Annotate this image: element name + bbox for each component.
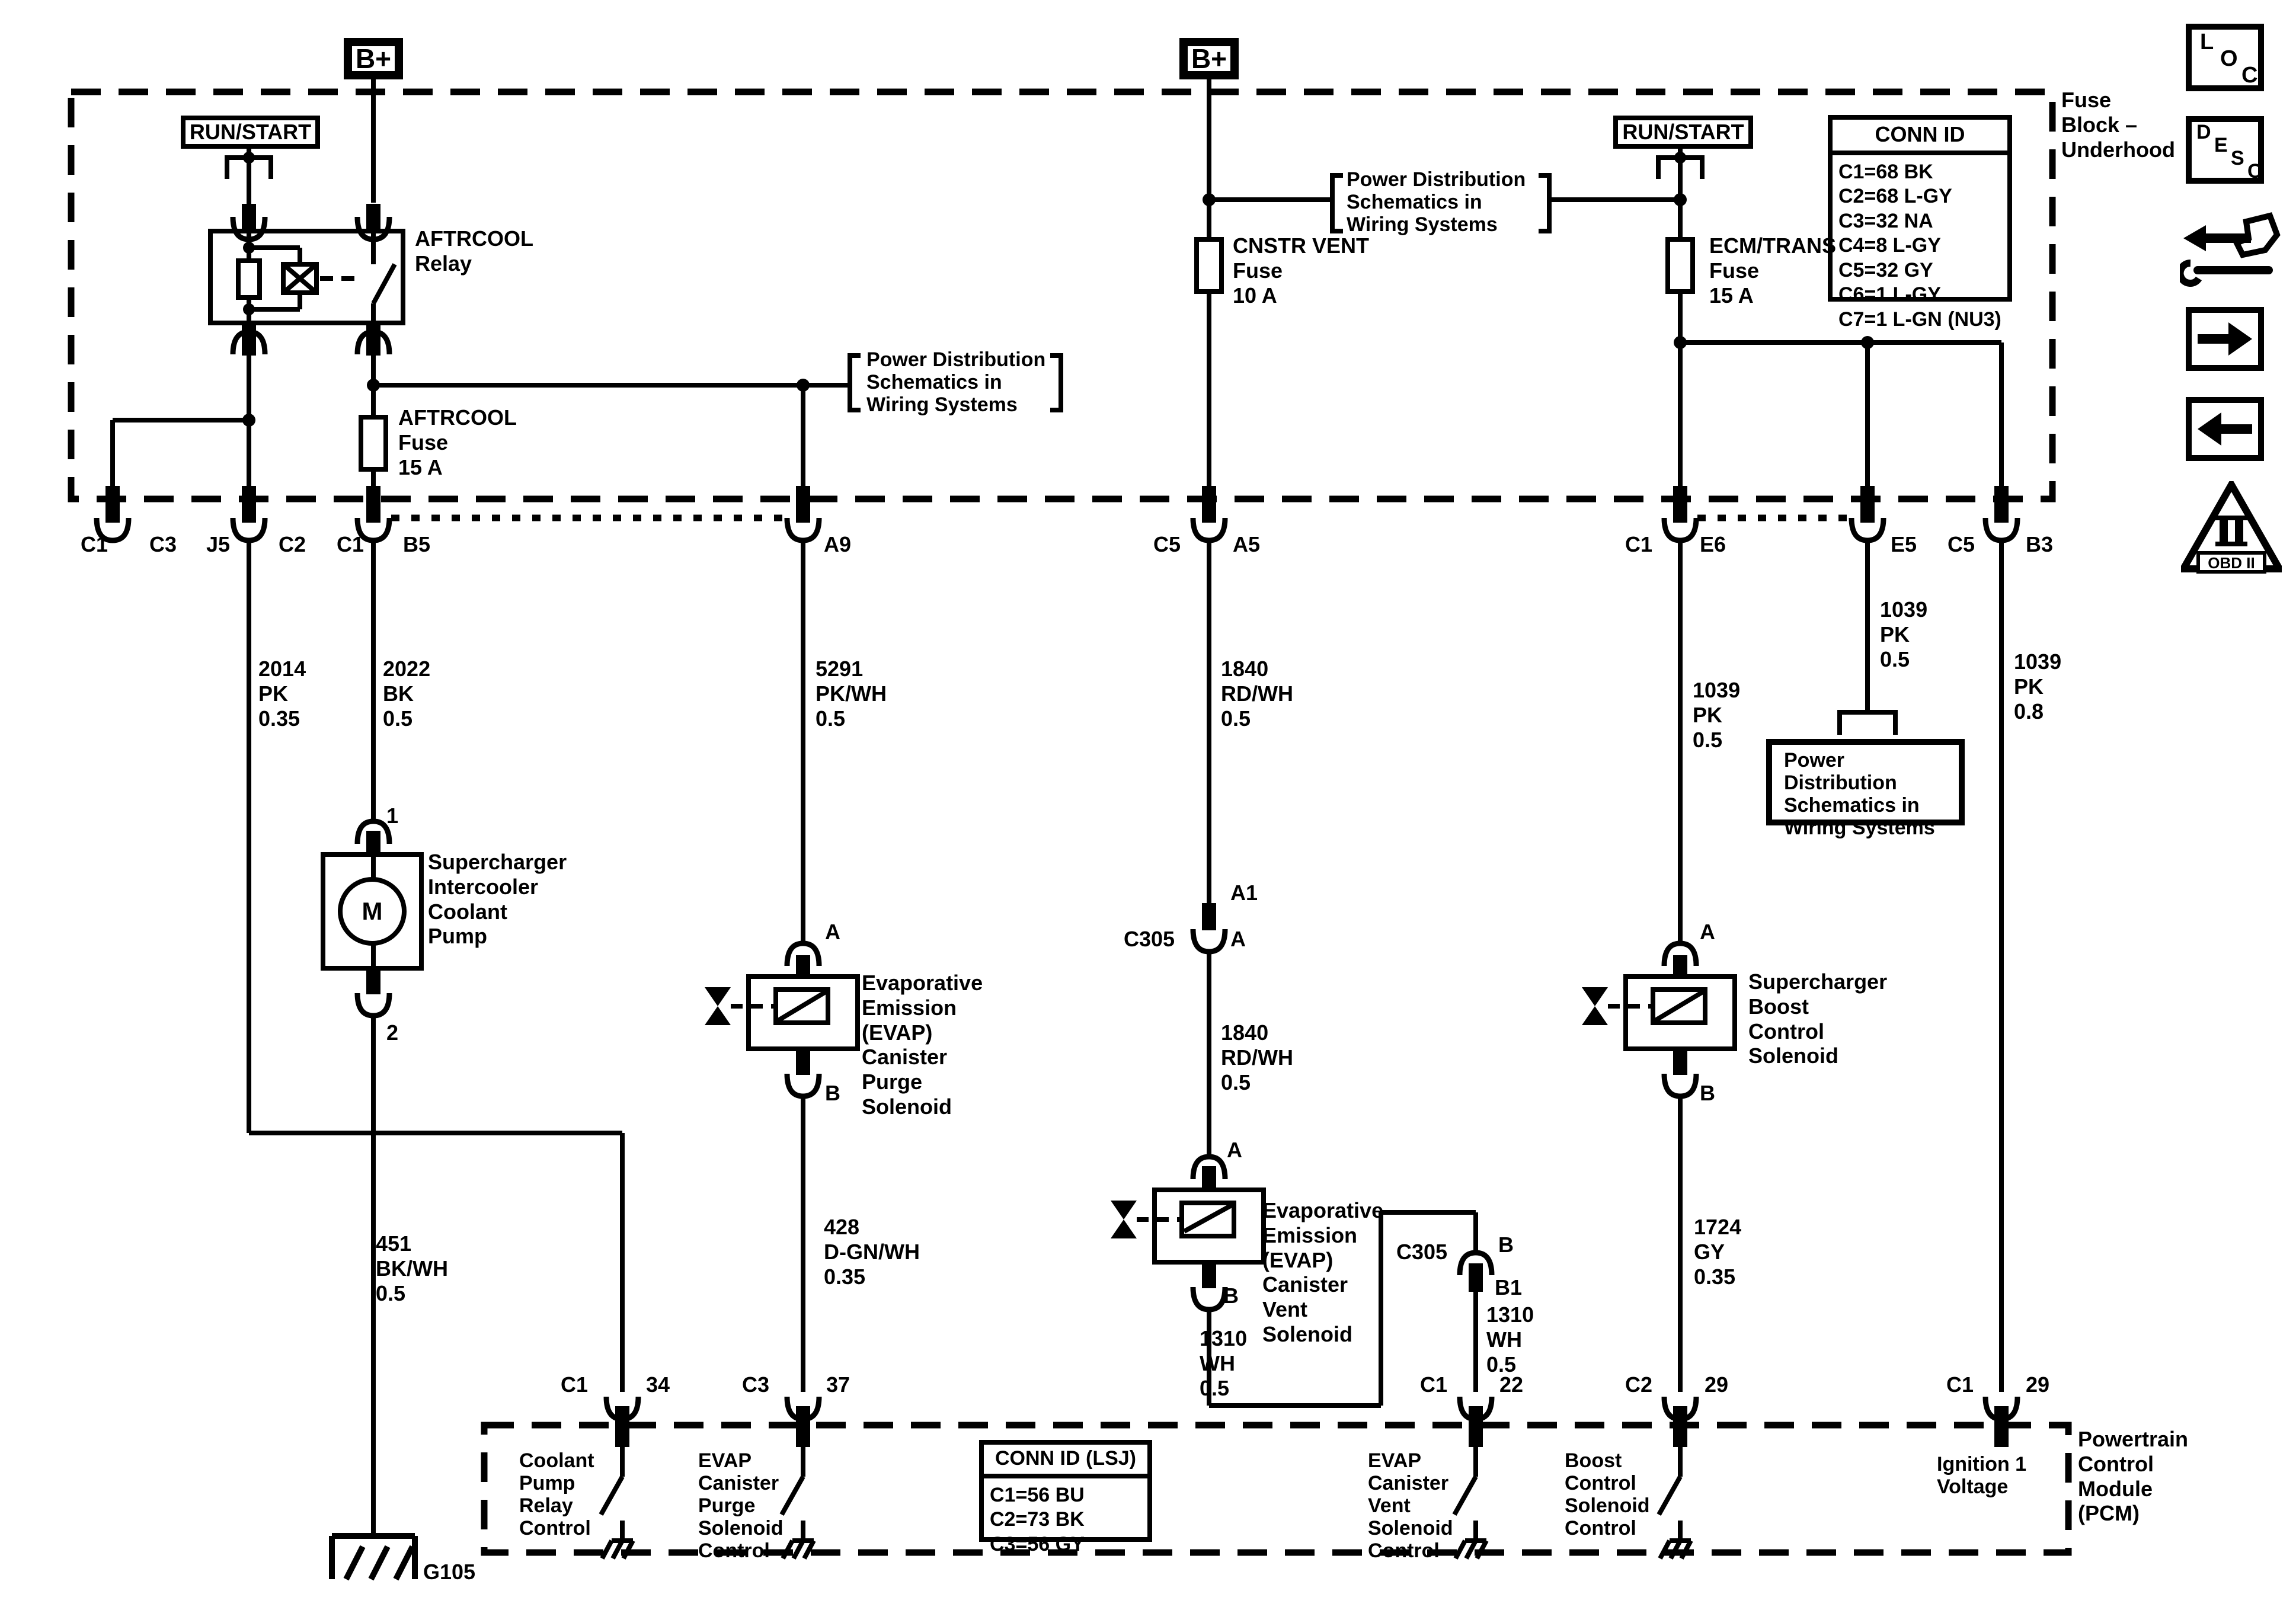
desc-letter: E	[2214, 134, 2228, 157]
cnstr-vent-fuse-label: CNSTR VENT Fuse 10 A	[1233, 233, 1369, 308]
conn-id-title: CONN ID	[1833, 120, 2007, 155]
wire-label: 1039 PK 0.8	[2014, 649, 2061, 724]
back-arrow-icon[interactable]	[2186, 397, 2264, 461]
boost-pinB-label: B	[1700, 1081, 1715, 1106]
wire-label: 1724 GY 0.35	[1694, 1215, 1741, 1289]
run-start-box-left: RUN/START	[181, 116, 320, 149]
c305b-name: C305	[1396, 1240, 1447, 1265]
power-dist-reference-left: Power Distribution Schematics in Wiring …	[866, 348, 1062, 416]
pump-pin2-label: 2	[386, 1020, 398, 1045]
pcm-conn-label: C1	[1420, 1372, 1447, 1397]
connector-label: E6	[1700, 532, 1726, 557]
wiring-diagram-page: B+ B+ RUN/START RUN/START CONN ID C1=68 …	[0, 0, 2296, 1610]
fuse-block-label: Fuse Block – Underhood	[2061, 88, 2175, 162]
ground-label: G105	[423, 1560, 475, 1585]
wire-label: 2022 BK 0.5	[383, 657, 430, 731]
connector-label: C5	[1948, 532, 1975, 557]
vent-solenoid-label: Evaporative Emission (EVAP) Canister Ven…	[1262, 1198, 1383, 1347]
pcm-pin-label: 34	[646, 1372, 670, 1397]
service-wrench-icon[interactable]	[2180, 204, 2281, 293]
loc-letter: C	[2241, 63, 2257, 88]
loc-letter: O	[2220, 46, 2238, 72]
wire-label: 1039 PK 0.5	[1880, 597, 1927, 671]
wire-label: 428 D-GN/WH 0.35	[824, 1215, 920, 1289]
conn-id-lsj-table: CONN ID (LSJ) C1=56 BU C2=73 BK C3=56 GY	[979, 1440, 1152, 1542]
ground-symbol	[332, 1536, 415, 1579]
pump-pin1-label: 1	[386, 804, 398, 828]
wire-label: 5291 PK/WH 0.5	[816, 657, 887, 731]
power-dist-reference-right: Power Distribution Schematics in Wiring …	[1784, 749, 1956, 839]
aftrcool-relay-label: AFTRCOOL Relay	[415, 226, 533, 276]
connector-label: A5	[1233, 532, 1260, 557]
vent-pinA-label: A	[1227, 1138, 1242, 1163]
pcm-pin-label: 29	[1705, 1372, 1728, 1397]
purge-pinA-label: A	[825, 920, 840, 945]
c305a-lower-pin: A	[1230, 927, 1246, 952]
connector-label: J5	[206, 532, 230, 557]
purge-pinB-label: B	[825, 1081, 840, 1106]
next-arrow-icon[interactable]	[2186, 307, 2264, 371]
boost-pinA-label: A	[1700, 920, 1715, 945]
pcm-pin-label: 29	[2026, 1372, 2049, 1397]
loc-letter: L	[2200, 30, 2214, 55]
wire-label: 1840 RD/WH 0.5	[1221, 1020, 1293, 1094]
conn-id-rows: C1=68 BK C2=68 L-GY C3=32 NA C4=8 L-GY C…	[1833, 155, 2007, 337]
pcm-label: Powertrain Control Module (PCM)	[2078, 1427, 2188, 1526]
wire-label: 451 BK/WH 0.5	[376, 1231, 448, 1305]
b-plus-terminal-left: B+	[344, 38, 403, 79]
pcm-conn-label: C2	[1625, 1372, 1652, 1397]
pcm-function-label: Boost Control Solenoid Control	[1565, 1449, 1650, 1539]
wire-label: 1310 WH 0.5	[1200, 1326, 1247, 1400]
c305b-lower-pin: B1	[1495, 1275, 1522, 1300]
vent-pinB-label: B	[1223, 1283, 1239, 1308]
wire-label: 2014 PK 0.35	[258, 657, 306, 731]
pcm-function-label: EVAP Canister Vent Solenoid Control	[1368, 1449, 1453, 1562]
pcm-conn-label: C1	[1946, 1372, 1974, 1397]
connector-label: C3	[149, 532, 177, 557]
loc-icon[interactable]: L O C	[2186, 24, 2264, 91]
wire-label: 1039 PK 0.5	[1693, 678, 1740, 752]
motor-m-label: M	[356, 896, 389, 927]
obd2-icon[interactable]: OBD II	[2181, 481, 2282, 576]
ecm-trans-fuse-label: ECM/TRANS Fuse 15 A	[1709, 233, 1836, 308]
boost-solenoid-label: Supercharger Boost Control Solenoid	[1748, 969, 1887, 1068]
pcm-pin-label: 37	[826, 1372, 850, 1397]
connector-label: B5	[403, 532, 430, 557]
b-plus-label: B+	[1191, 43, 1227, 75]
run-start-label: RUN/START	[1622, 120, 1744, 145]
power-dist-reference-middle: Power Distribution Schematics in Wiring …	[1347, 168, 1542, 236]
run-start-box-right: RUN/START	[1613, 116, 1753, 149]
desc-letter: D	[2196, 121, 2211, 144]
connector-label: C1	[1625, 532, 1652, 557]
connector-label: C5	[1153, 532, 1181, 557]
pump-label: Supercharger Intercooler Coolant Pump	[428, 850, 567, 949]
c305b-upper-pin: B	[1498, 1233, 1514, 1257]
conn-id-table: CONN ID C1=68 BK C2=68 L-GY C3=32 NA C4=…	[1828, 115, 2012, 302]
conn-id-lsj-title: CONN ID (LSJ)	[984, 1445, 1147, 1478]
connector-label: C2	[279, 532, 306, 557]
c305a-upper-pin: A1	[1230, 881, 1258, 905]
pcm-conn-label: C1	[561, 1372, 588, 1397]
c305a-name: C305	[1124, 927, 1175, 952]
desc-letter: S	[2231, 147, 2244, 170]
pcm-function-label: Ignition 1 Voltage	[1937, 1453, 2026, 1498]
connector-label: E5	[1891, 532, 1917, 557]
conn-id-lsj-rows: C1=56 BU C2=73 BK C3=56 GY	[984, 1478, 1147, 1561]
connector-label: C1	[81, 532, 108, 557]
pcm-pin-label: 22	[1499, 1372, 1523, 1397]
obd2-label: OBD II	[2196, 551, 2266, 574]
connector-label: B3	[2026, 532, 2053, 557]
pcm-function-label: EVAP Canister Purge Solenoid Control	[698, 1449, 784, 1562]
aftrcool-fuse-label: AFTRCOOL Fuse 15 A	[398, 405, 517, 479]
desc-icon[interactable]: D E S C	[2186, 116, 2264, 184]
b-plus-label: B+	[356, 43, 391, 75]
wire-label: 1840 RD/WH 0.5	[1221, 657, 1293, 731]
connector-label: C1	[337, 532, 364, 557]
connector-label: A9	[824, 532, 851, 557]
pcm-function-label: Coolant Pump Relay Control	[519, 1449, 594, 1539]
pcm-conn-label: C3	[742, 1372, 769, 1397]
desc-letter: C	[2247, 160, 2262, 183]
wire-label: 1310 WH 0.5	[1486, 1302, 1534, 1377]
purge-solenoid-label: Evaporative Emission (EVAP) Canister Pur…	[862, 971, 983, 1119]
b-plus-terminal-middle: B+	[1179, 38, 1239, 79]
run-start-label: RUN/START	[190, 120, 311, 145]
